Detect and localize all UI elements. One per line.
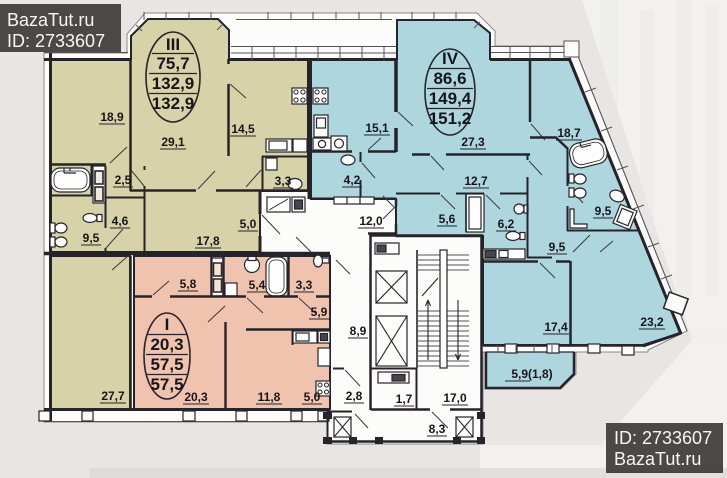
svg-text:23,2: 23,2: [640, 315, 664, 329]
svg-text:3,3: 3,3: [296, 278, 313, 292]
svg-text:ID: 2733607: ID: 2733607: [614, 428, 712, 448]
svg-text:4,6: 4,6: [112, 214, 129, 228]
svg-text:ID: 2733607: ID: 2733607: [7, 31, 105, 51]
svg-text:75,7: 75,7: [156, 54, 189, 73]
svg-text:27,3: 27,3: [461, 135, 485, 149]
svg-text:27,7: 27,7: [101, 389, 125, 403]
svg-text:BazaTut.ru: BazaTut.ru: [7, 10, 94, 30]
svg-text:I: I: [165, 315, 170, 334]
svg-text:12,0: 12,0: [359, 214, 383, 228]
svg-text:12,7: 12,7: [464, 174, 488, 188]
svg-text:14,5: 14,5: [231, 122, 255, 136]
svg-text:5,6: 5,6: [439, 212, 456, 226]
svg-text:57,5: 57,5: [150, 375, 183, 394]
svg-text:18,7: 18,7: [557, 126, 581, 140]
svg-text:17,8: 17,8: [196, 234, 220, 248]
svg-text:9,5: 9,5: [83, 231, 100, 245]
svg-text:86,6: 86,6: [433, 69, 466, 88]
svg-text:29,1: 29,1: [161, 135, 185, 149]
svg-text:57,5: 57,5: [150, 355, 183, 374]
svg-text:2,5: 2,5: [115, 173, 132, 187]
svg-text:11,8: 11,8: [258, 390, 281, 404]
svg-text:BazaTut.ru: BazaTut.ru: [614, 449, 701, 469]
svg-text:15,1: 15,1: [365, 121, 389, 135]
svg-text:132,9: 132,9: [152, 74, 195, 93]
svg-text:3,3: 3,3: [275, 174, 292, 188]
svg-text:1,7: 1,7: [396, 392, 413, 406]
svg-text:2,8: 2,8: [346, 389, 363, 403]
svg-text:6,2: 6,2: [498, 217, 515, 231]
svg-text:III: III: [166, 35, 180, 54]
svg-text:IV: IV: [442, 49, 459, 68]
svg-text:17,4: 17,4: [544, 320, 568, 334]
svg-text:20,3: 20,3: [150, 335, 183, 354]
svg-text:17,0: 17,0: [443, 391, 467, 405]
svg-text:5,0: 5,0: [304, 390, 321, 404]
svg-text:8,3: 8,3: [429, 422, 446, 436]
svg-text:9,5: 9,5: [595, 204, 612, 218]
svg-text:8,9: 8,9: [350, 324, 367, 338]
svg-text:5,0: 5,0: [240, 217, 257, 231]
svg-text:149,4: 149,4: [429, 89, 472, 108]
svg-text:5,9(1,8): 5,9(1,8): [511, 367, 552, 381]
svg-text:20,3: 20,3: [184, 390, 208, 404]
svg-text:5,4: 5,4: [249, 278, 266, 292]
svg-text:132,9: 132,9: [152, 94, 195, 113]
svg-text:5,9: 5,9: [311, 305, 328, 319]
svg-text:18,9: 18,9: [100, 110, 124, 124]
svg-text:151,2: 151,2: [429, 109, 472, 128]
svg-text:5,8: 5,8: [180, 277, 197, 291]
svg-text:4,2: 4,2: [344, 173, 361, 187]
svg-text:9,5: 9,5: [549, 240, 566, 254]
